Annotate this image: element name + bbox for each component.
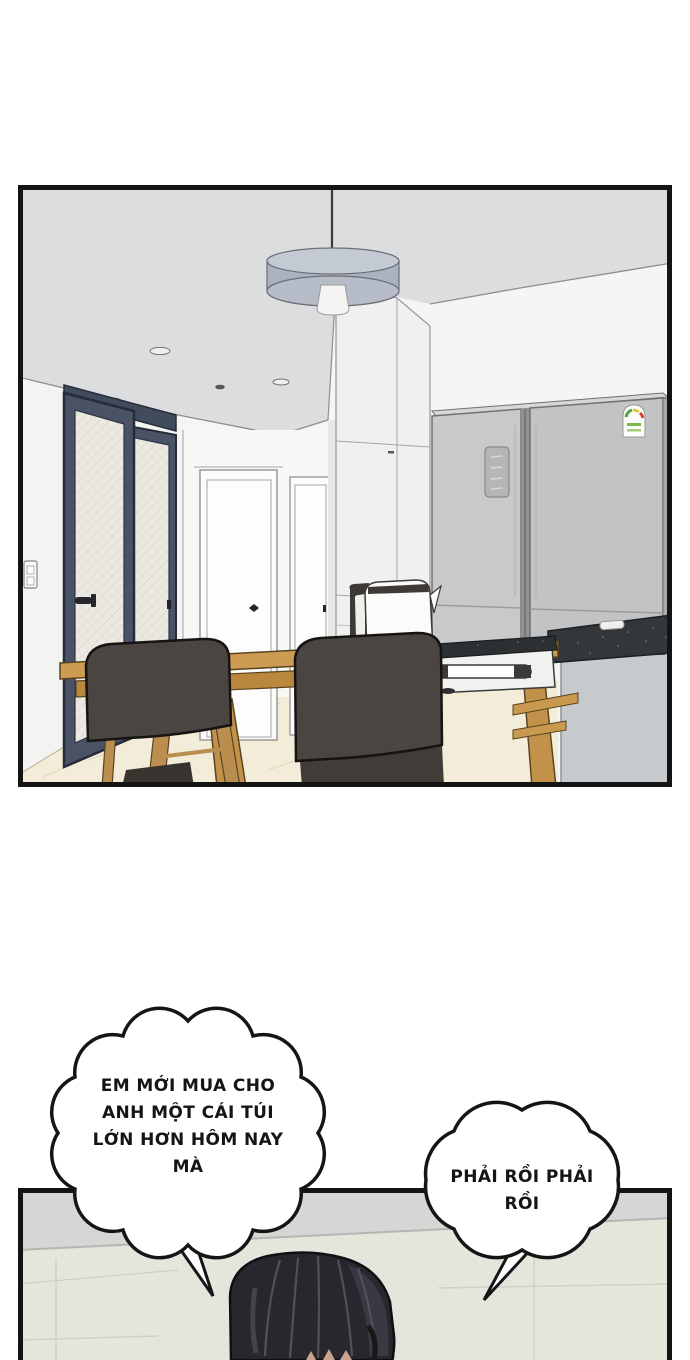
- light-switch: [24, 561, 37, 588]
- left-wall: [18, 377, 64, 787]
- chair-backrest: [295, 633, 442, 761]
- refrigerator: [432, 393, 668, 655]
- energy-label: [623, 405, 645, 437]
- remote-on-counter: [600, 620, 624, 630]
- bubble-1-text: EM MỚI MUA CHO ANH MỘT CÁI TÚI LỚN HƠN H…: [53, 1073, 323, 1181]
- bubble-line: LỚN HƠN HÔM NAY: [53, 1127, 323, 1154]
- chair-backrest: [86, 639, 231, 741]
- bubble-line: EM MỚI MUA CHO: [53, 1073, 323, 1100]
- chair-right: [295, 633, 444, 787]
- bubble-line: ANH MỘT CÁI TÚI: [53, 1100, 323, 1127]
- bubble-line: RỒI: [422, 1191, 622, 1218]
- fridge-left-door: [432, 409, 521, 655]
- comic-page: EM MỚI MUA CHO ANH MỘT CÁI TÚI LỚN HƠN H…: [0, 0, 690, 1360]
- fridge-display: [485, 447, 509, 497]
- bubble-line: MÀ: [53, 1154, 323, 1181]
- door-handle: [75, 597, 92, 604]
- lamp-bulb: [317, 285, 349, 315]
- bubble-2-text: PHẢI RỒI PHẢI RỒI: [422, 1164, 622, 1218]
- bubble-line: PHẢI RỒI PHẢI: [422, 1164, 622, 1191]
- panel-kitchen: [18, 185, 672, 787]
